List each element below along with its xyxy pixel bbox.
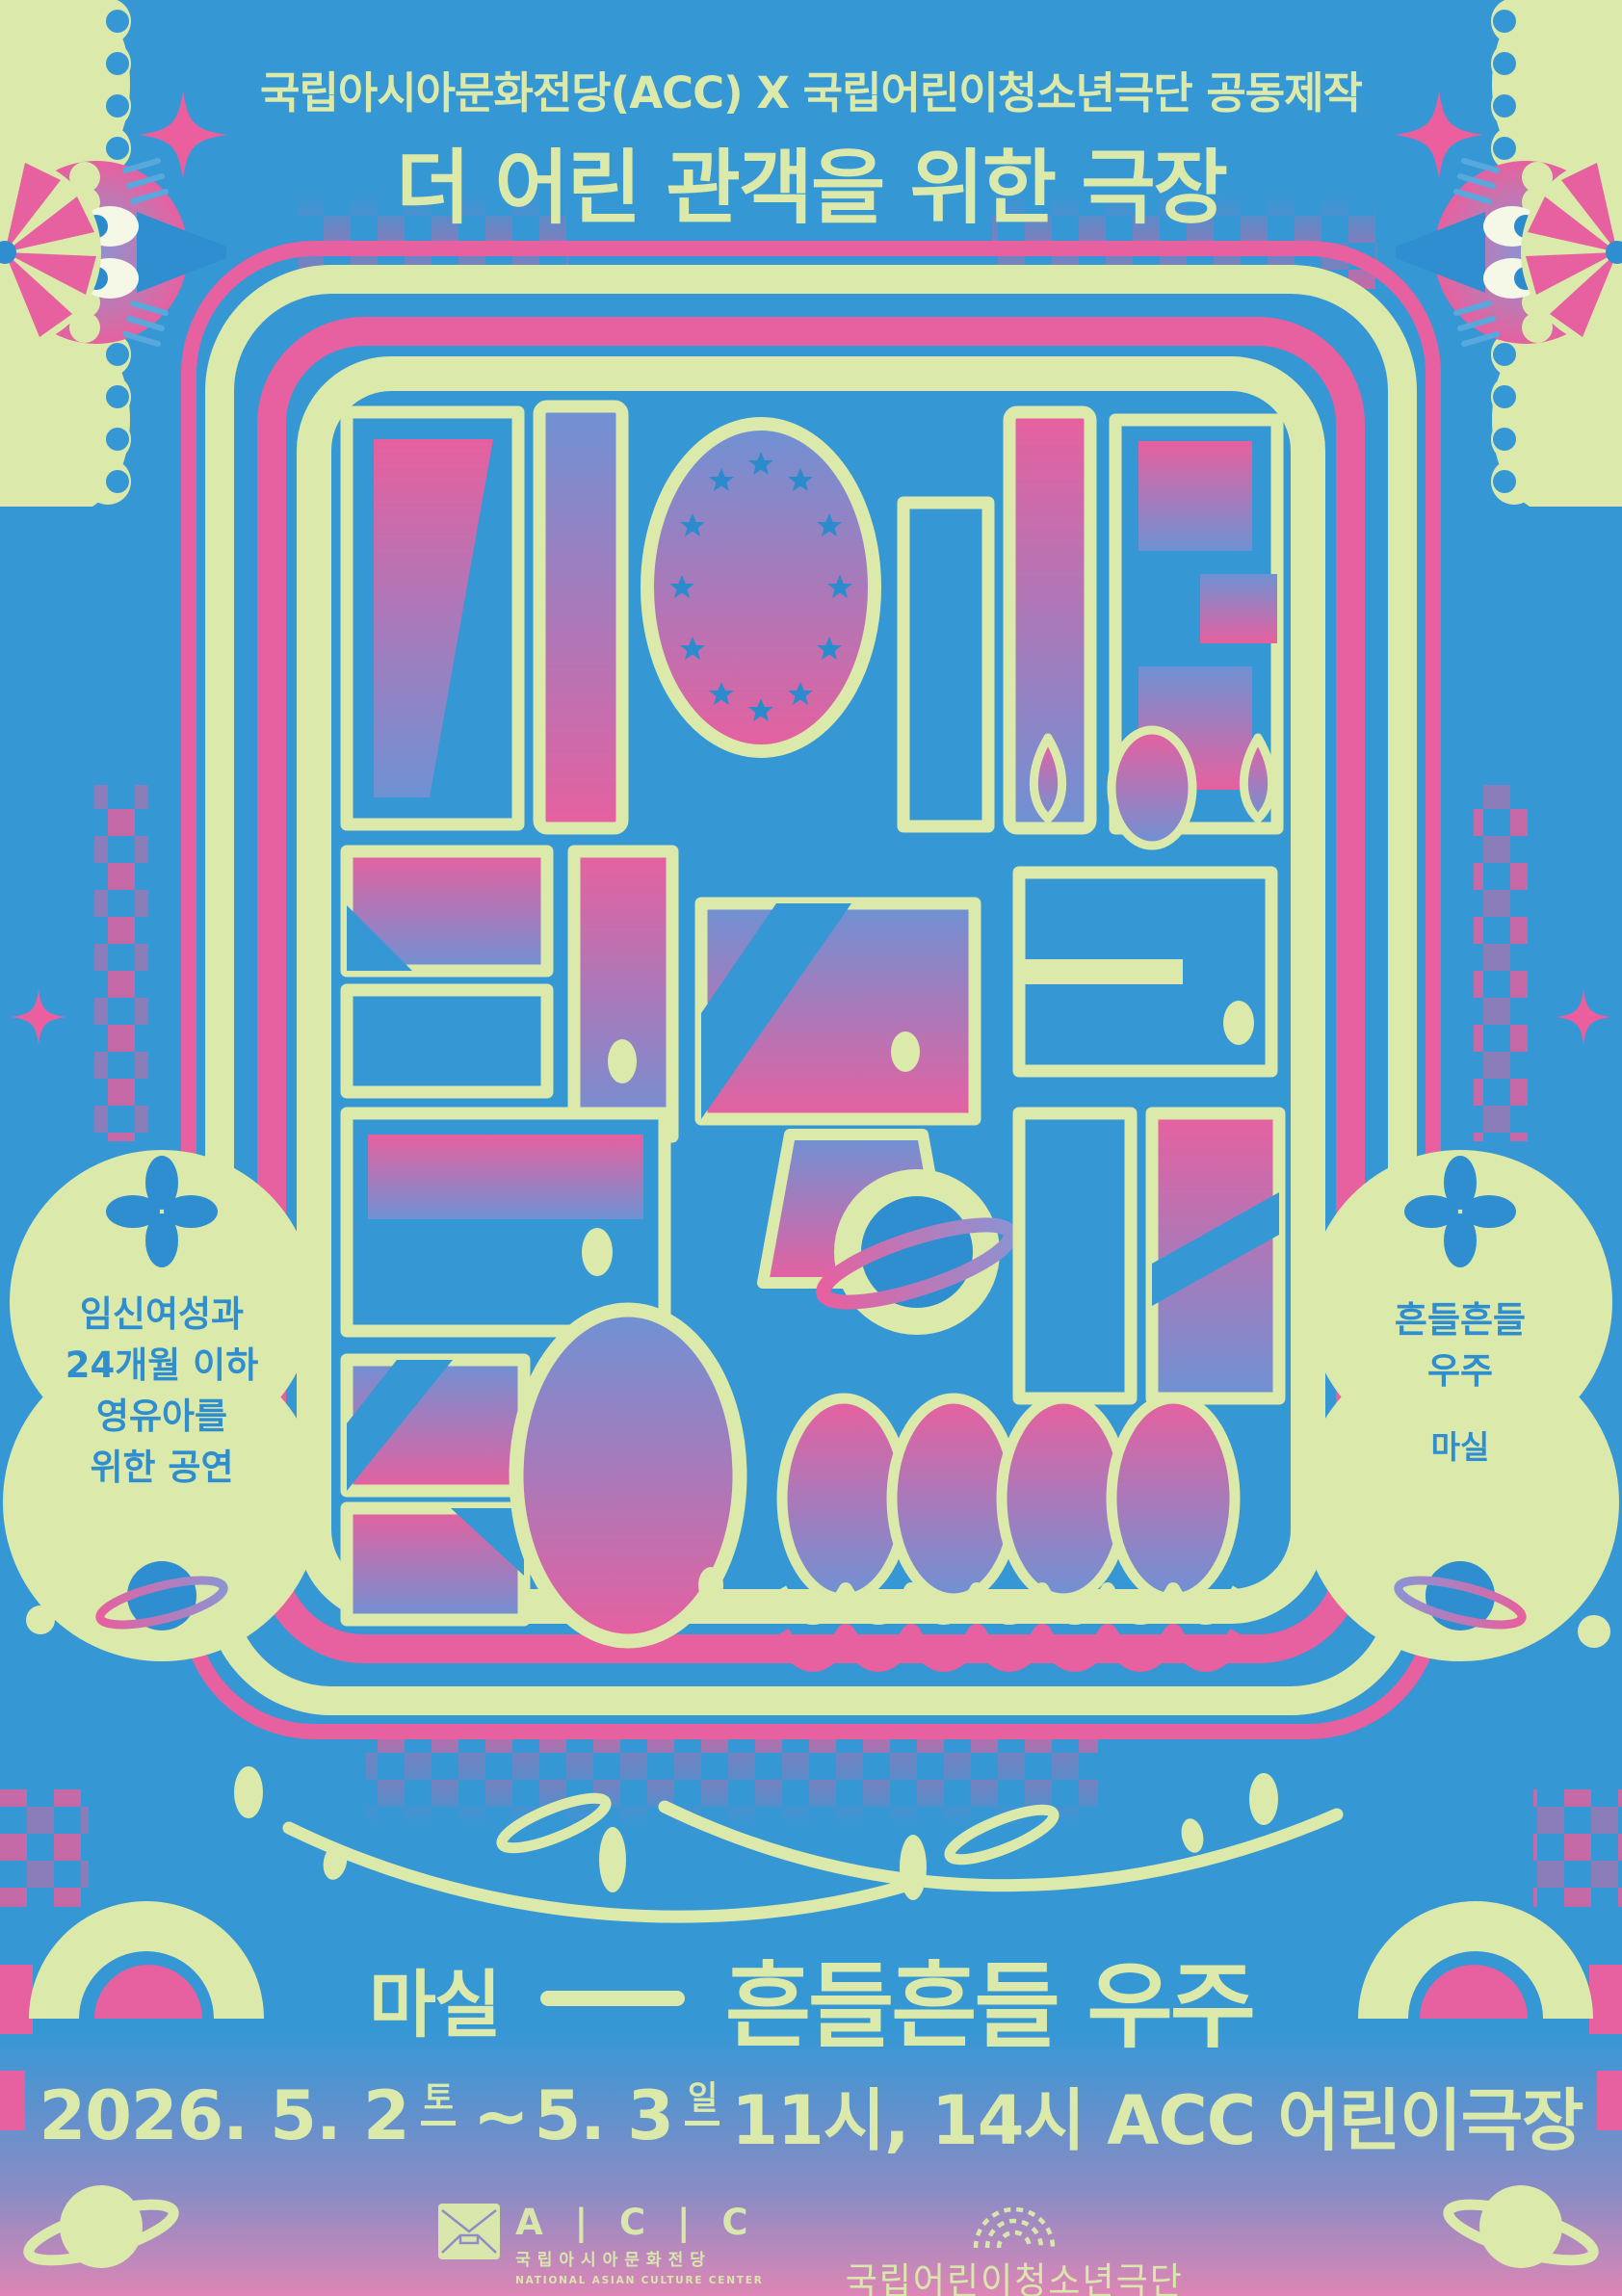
acc-logo: A | C | C 국립아시아문화전당 NATIONAL ASIAN CULTU… [438,2204,764,2286]
badge-left-line: 임신여성과 [37,1289,287,1340]
badge-left-line: 영유아를 [37,1391,287,1442]
footer-logos: A | C | C 국립아시아문화전당 NATIONAL ASIAN CULTU… [0,2204,1622,2296]
schedule-day1: 토 [421,2072,456,2126]
schedule-date1: 2026. 5. 2 [39,2076,408,2155]
badge-right: 흔들흔들 우주 마실 [1335,1294,1585,1468]
schedule-date2: 5. 3 [535,2076,673,2155]
schedule-tilde: ~ [473,2076,529,2155]
acc-korean-name: 국립아시아문화전당 [515,2246,764,2270]
company-name: 마실 [369,1945,500,2051]
show-title-line: 마실 흔들흔들 우주 [0,1930,1622,2066]
theater-name: 국립어린이청소년극단 [846,2252,1184,2296]
badge-left: 임신여성과 24개월 이하 영유아를 위한 공연 [37,1289,287,1493]
badge-left-line: 24개월 이하 [37,1340,287,1391]
badge-right-line: 흔들흔들 [1335,1294,1585,1345]
program-title: 더 어린 관객을 위한 극장 [0,123,1622,240]
acc-english-name: NATIONAL ASIAN CULTURE CENTER [515,2275,764,2286]
schedule-rest: 11시, 14시 ACC 어린이극장 [731,2067,1583,2164]
theater-arcs-icon [968,2205,1060,2248]
coproduction-line: 국립아시아문화전당(ACC) X 국립어린이청소년극단 공동제작 [0,58,1622,120]
poster: 국립아시아문화전당(ACC) X 국립어린이청소년극단 공동제작 더 어린 관객… [0,0,1622,2296]
main-title-letters [347,406,1279,1662]
acc-logo-text: A | C | C 국립아시아문화전당 NATIONAL ASIAN CULTU… [515,2204,764,2286]
show-title: 흔들흔들 우주 [725,1930,1253,2066]
badge-left-line: 위한 공연 [37,1442,287,1493]
badge-right-line: 우주 [1335,1345,1585,1396]
dash-separator [540,1991,685,2006]
badge-right-subtitle: 마실 [1335,1422,1585,1468]
acc-envelope-icon [438,2204,500,2259]
schedule-line: 2026. 5. 2 토 ~ 5. 3 일 11시, 14시 ACC 어린이극장 [0,2067,1622,2164]
acc-acronym: A | C | C [515,2204,764,2242]
theater-logo: 국립어린이청소년극단 [846,2205,1184,2296]
schedule-day2: 일 [685,2072,719,2126]
